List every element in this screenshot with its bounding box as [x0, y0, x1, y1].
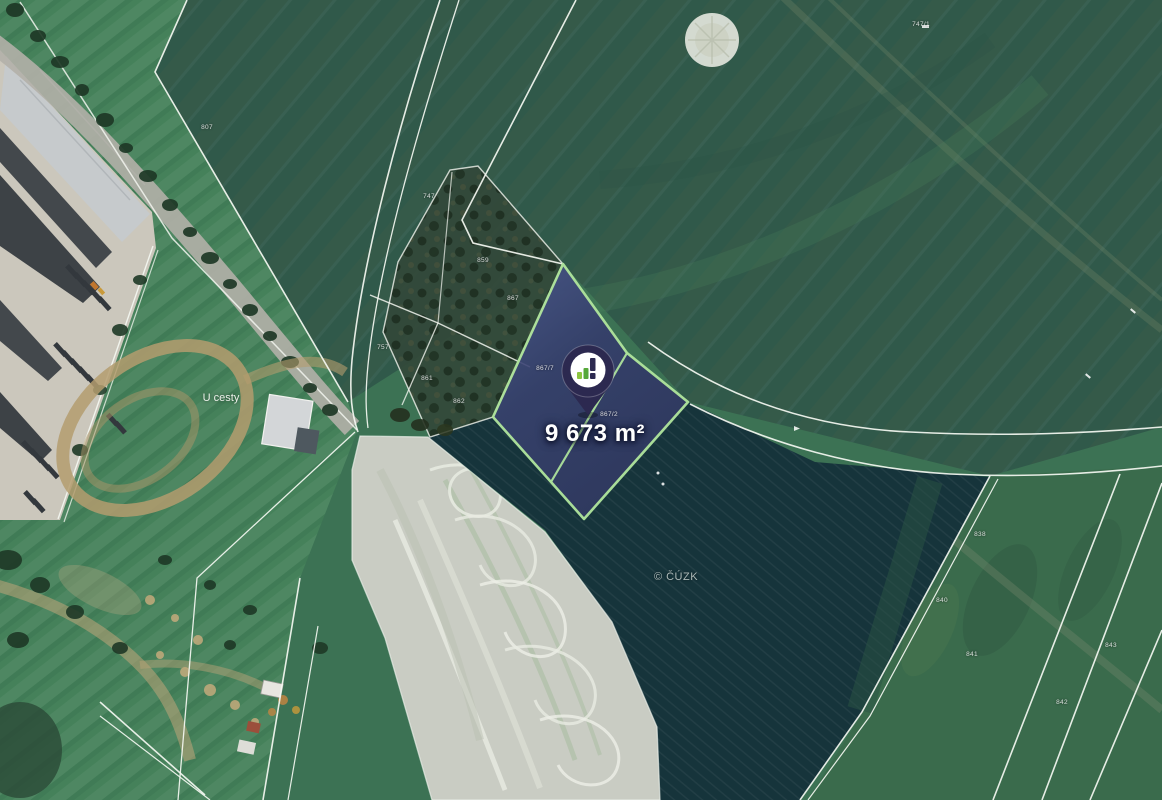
map-canvas[interactable]: 9 673 m² U cesty © ČÚZK 7478598677578618… [0, 0, 1162, 800]
satellite-imagery [0, 0, 1162, 800]
circular-field-feature [685, 13, 739, 67]
